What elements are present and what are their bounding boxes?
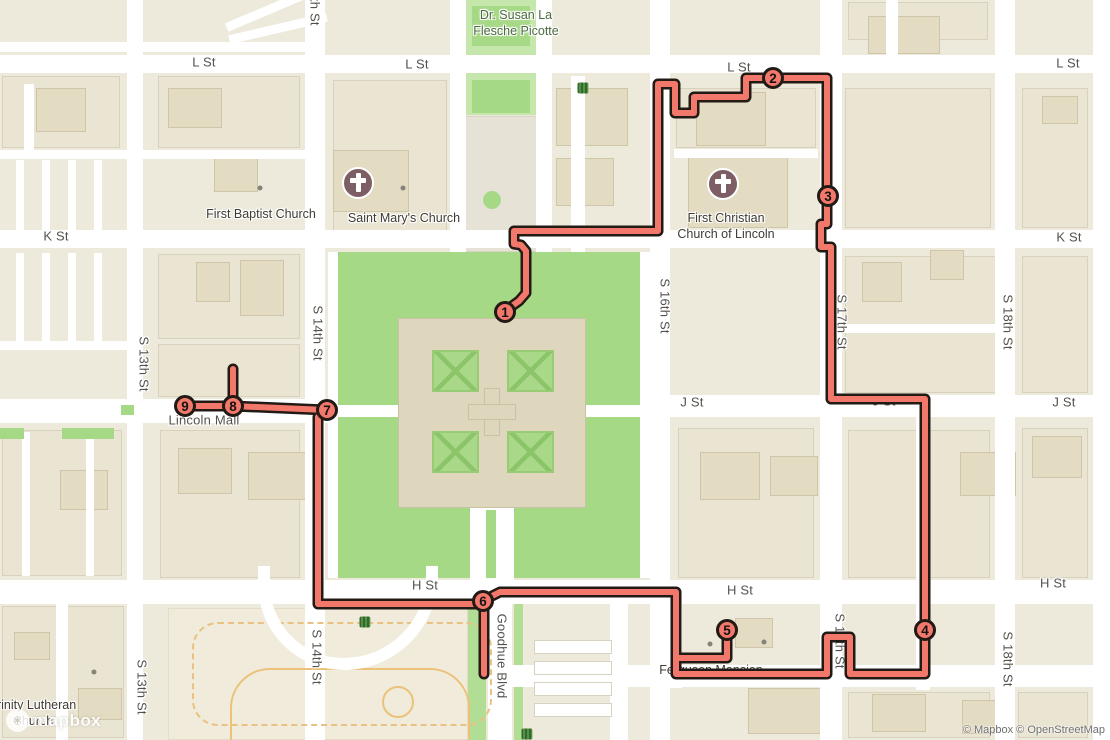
map-attribution[interactable]: © Mapbox © OpenStreetMap xyxy=(963,724,1105,736)
route-marker-7[interactable]: 7 xyxy=(316,399,338,421)
route-marker-1[interactable]: 1 xyxy=(494,301,516,323)
route-marker-2[interactable]: 2 xyxy=(762,67,784,89)
mapbox-logo[interactable]: ✶ mapbox xyxy=(6,709,101,732)
route-marker-5[interactable]: 5 xyxy=(716,619,738,641)
route-line xyxy=(185,78,925,674)
route-outline xyxy=(185,78,925,674)
route-marker-6[interactable]: 6 xyxy=(472,590,494,612)
mapbox-logo-icon: ✶ xyxy=(6,709,29,732)
map-canvas[interactable]: ✶ mapbox © Mapbox © OpenStreetMap L StL … xyxy=(0,0,1110,740)
mapbox-logo-text: mapbox xyxy=(33,711,101,731)
route-marker-8[interactable]: 8 xyxy=(222,395,244,417)
route-marker-3[interactable]: 3 xyxy=(817,185,839,207)
route xyxy=(0,0,1110,740)
route-marker-4[interactable]: 4 xyxy=(914,619,936,641)
route-marker-9[interactable]: 9 xyxy=(174,395,196,417)
